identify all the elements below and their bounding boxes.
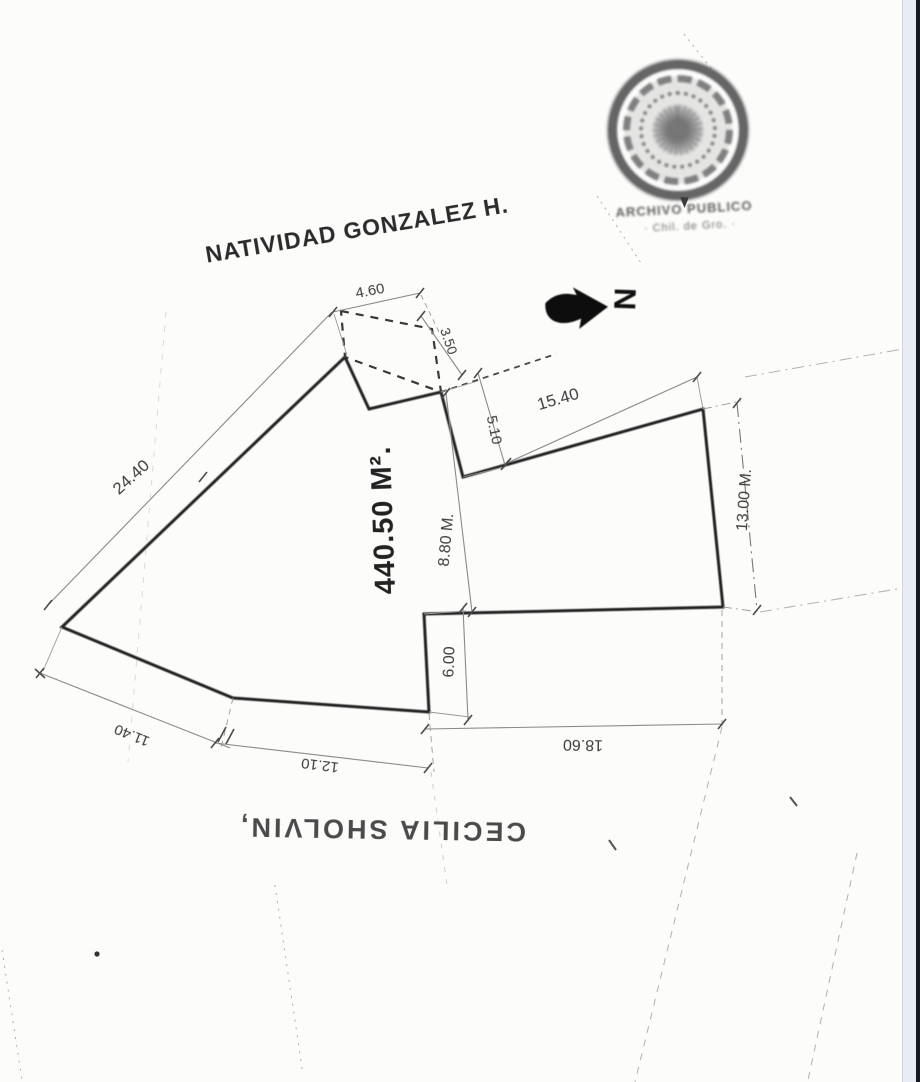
dim-south-east-edge: 18.60 bbox=[563, 736, 603, 753]
label-parcel-area: 440.50 M². bbox=[367, 445, 401, 595]
official-seal-stamp bbox=[608, 60, 748, 200]
scanned-page: NATIVIDAD GONZALEZ H. CECILIA SHOLVIN, 4… bbox=[0, 0, 920, 1082]
page-edge-band bbox=[902, 0, 916, 1082]
north-arrow-icon bbox=[544, 284, 610, 332]
seal-coat-of-arms bbox=[653, 105, 703, 155]
dim-south-mid-edge: 12.10 bbox=[300, 755, 339, 774]
extension-lines bbox=[43, 295, 760, 772]
label-neighbor-south: CECILIA SHOLVIN, bbox=[238, 813, 526, 845]
north-letter: N bbox=[609, 287, 641, 310]
page-edge-line bbox=[916, 0, 920, 1082]
survey-drawing bbox=[0, 0, 920, 1082]
dim-step-height: 6.00 bbox=[441, 646, 458, 678]
